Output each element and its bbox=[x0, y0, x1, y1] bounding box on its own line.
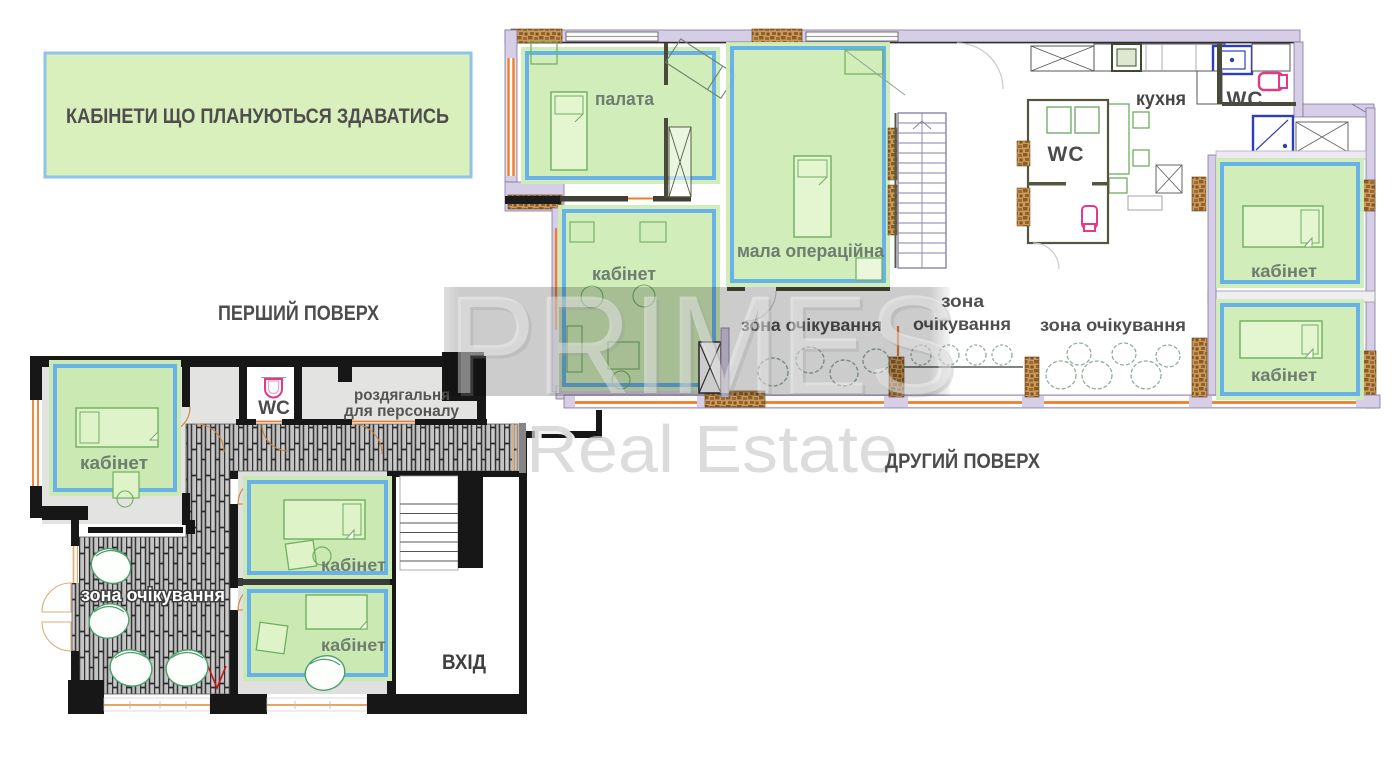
svg-text:кабінет: кабінет bbox=[321, 635, 386, 655]
svg-text:ДРУГИЙ ПОВЕРХ: ДРУГИЙ ПОВЕРХ bbox=[885, 449, 1040, 473]
svg-text:ПЕРШИЙ ПОВЕРХ: ПЕРШИЙ ПОВЕРХ bbox=[218, 301, 379, 325]
svg-text:WC: WC bbox=[1048, 143, 1085, 166]
svg-text:кабінет: кабінет bbox=[1251, 365, 1317, 385]
svg-text:ВХІД: ВХІД bbox=[442, 651, 486, 674]
svg-text:зона очікування: зона очікування bbox=[1040, 315, 1186, 335]
svg-text:кабінет: кабінет bbox=[80, 452, 148, 473]
svg-text:зона очікування: зона очікування bbox=[81, 585, 225, 605]
svg-text:роздягальня: роздягальня bbox=[354, 387, 450, 404]
svg-text:PRIMES: PRIMES bbox=[447, 266, 957, 423]
svg-text:палата: палата bbox=[595, 88, 655, 109]
svg-text:WC: WC bbox=[258, 398, 290, 419]
svg-text:кухня: кухня bbox=[1136, 88, 1186, 110]
svg-text:кабінет: кабінет bbox=[321, 555, 386, 575]
svg-text:кабінет: кабінет bbox=[1251, 261, 1317, 281]
svg-text:мала операційна: мала операційна bbox=[737, 240, 885, 261]
svg-text:для персоналу: для персоналу bbox=[344, 403, 459, 420]
svg-text:Real Estate: Real Estate bbox=[526, 412, 898, 487]
svg-text:КАБІНЕТИ ЩО ПЛАНУЮТЬСЯ ЗДАВАТИ: КАБІНЕТИ ЩО ПЛАНУЮТЬСЯ ЗДАВАТИСЬ bbox=[66, 105, 449, 128]
svg-text:WC: WC bbox=[1227, 88, 1264, 111]
